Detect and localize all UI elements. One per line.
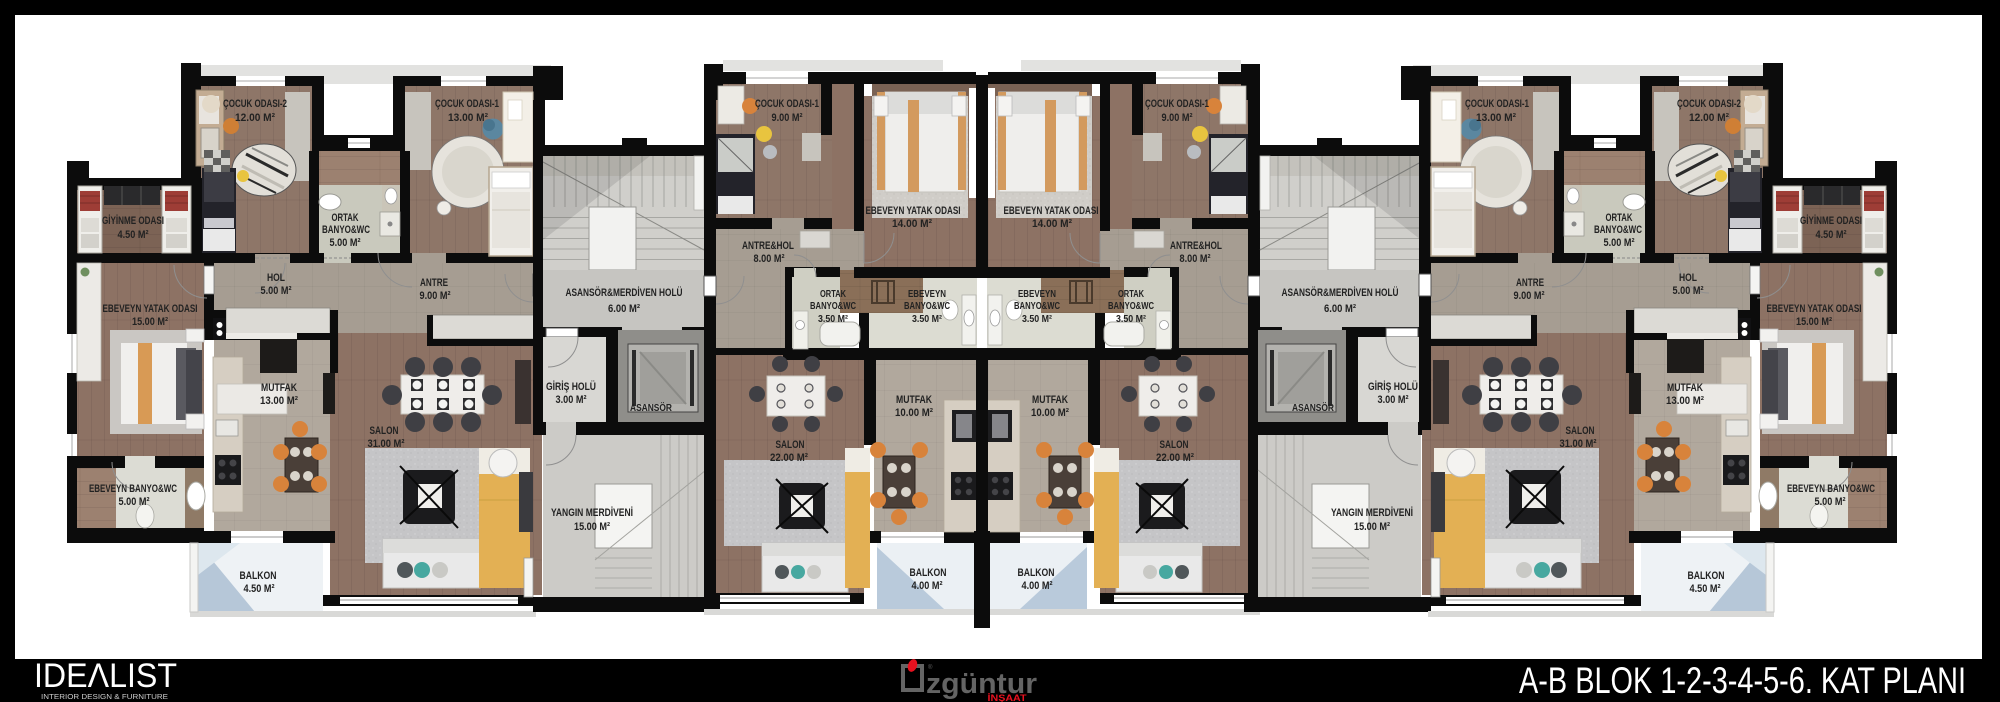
svg-text:GİYİNME ODASI: GİYİNME ODASI (102, 214, 164, 227)
svg-text:3.50 M²: 3.50 M² (1116, 313, 1146, 325)
svg-text:3.50 M²: 3.50 M² (912, 313, 942, 325)
svg-text:3.50 M²: 3.50 M² (818, 313, 848, 325)
svg-text:6.00 M²: 6.00 M² (608, 303, 640, 315)
svg-text:9.00 M²: 9.00 M² (420, 290, 451, 302)
svg-text:5.00 M²: 5.00 M² (261, 285, 292, 297)
svg-text:13.00 M²: 13.00 M² (260, 395, 298, 407)
svg-text:4.00 M²: 4.00 M² (912, 580, 943, 592)
svg-text:14.00 M²: 14.00 M² (892, 218, 932, 230)
svg-text:ÇOCUK ODASI-1: ÇOCUK ODASI-1 (1145, 98, 1209, 110)
svg-text:22.00 M²: 22.00 M² (1156, 452, 1194, 464)
svg-text:8.00 M²: 8.00 M² (754, 253, 785, 265)
svg-text:4.00 M²: 4.00 M² (1022, 580, 1053, 592)
svg-text:3.50 M²: 3.50 M² (1022, 313, 1052, 325)
svg-text:5.00 M²: 5.00 M² (1604, 237, 1635, 249)
svg-text:ÇOCUK ODASI-1: ÇOCUK ODASI-1 (1465, 98, 1529, 110)
svg-text:15.00 M²: 15.00 M² (1354, 521, 1390, 533)
svg-text:4.50 M²: 4.50 M² (1816, 229, 1847, 241)
svg-text:ANTRE: ANTRE (420, 277, 448, 289)
svg-text:31.00 M²: 31.00 M² (1560, 438, 1597, 450)
svg-text:®: ® (928, 664, 933, 671)
svg-text:5.00 M²: 5.00 M² (1673, 285, 1704, 297)
svg-text:ÇOCUK ODASI-2: ÇOCUK ODASI-2 (1677, 98, 1741, 110)
svg-text:EBEVEYN YATAK ODASI: EBEVEYN YATAK ODASI (103, 303, 198, 315)
svg-text:SALON: SALON (776, 439, 805, 451)
svg-text:15.00 M²: 15.00 M² (574, 521, 610, 533)
svg-text:MUTFAK: MUTFAK (1032, 394, 1068, 406)
svg-text:MUTFAK: MUTFAK (1667, 382, 1703, 394)
svg-text:ÇOCUK ODASI-2: ÇOCUK ODASI-2 (223, 98, 287, 110)
svg-text:ANTRE&HOL: ANTRE&HOL (742, 240, 794, 252)
svg-text:15.00 M²: 15.00 M² (132, 316, 168, 328)
svg-text:GİRİŞ HOLÜ: GİRİŞ HOLÜ (1368, 380, 1418, 393)
svg-text:ORTAK: ORTAK (1606, 212, 1633, 224)
svg-text:ORTAK: ORTAK (820, 288, 846, 300)
svg-text:IDEΛLIST: IDEΛLIST (34, 657, 177, 695)
svg-text:MUTFAK: MUTFAK (261, 382, 297, 394)
svg-text:EBEVEYN: EBEVEYN (908, 288, 946, 300)
svg-text:INTERIOR DESIGN & FURNITURE: INTERIOR DESIGN & FURNITURE (41, 694, 168, 701)
svg-text:A-B BLOK 1-2-3-4-5-6. KAT PLAN: A-B BLOK 1-2-3-4-5-6. KAT PLANI (1519, 660, 1966, 701)
svg-text:ANTRE&HOL: ANTRE&HOL (1170, 240, 1222, 252)
svg-text:BALKON: BALKON (910, 567, 947, 579)
svg-text:BANYO&WC: BANYO&WC (1108, 300, 1154, 312)
svg-text:BANYO&WC: BANYO&WC (1014, 300, 1060, 312)
svg-text:14.00 M²: 14.00 M² (1032, 218, 1072, 230)
svg-text:ASANSÖR&MERDİVEN HOLÜ: ASANSÖR&MERDİVEN HOLÜ (1282, 286, 1399, 299)
svg-text:ORTAK: ORTAK (1118, 288, 1144, 300)
svg-text:HOL: HOL (1679, 272, 1697, 284)
svg-text:6.00 M²: 6.00 M² (1324, 303, 1356, 315)
svg-text:GİYİNME ODASI: GİYİNME ODASI (1800, 214, 1862, 227)
svg-text:ASANSÖR&MERDİVEN HOLÜ: ASANSÖR&MERDİVEN HOLÜ (566, 286, 683, 299)
svg-text:9.00 M²: 9.00 M² (1514, 290, 1545, 302)
svg-text:4.50 M²: 4.50 M² (244, 583, 275, 595)
svg-text:GİRİŞ HOLÜ: GİRİŞ HOLÜ (546, 380, 596, 393)
svg-text:13.00 M²: 13.00 M² (1476, 112, 1516, 124)
svg-text:BALKON: BALKON (1688, 570, 1725, 582)
svg-text:3.00 M²: 3.00 M² (556, 394, 587, 406)
svg-text:EBEVEYN BANYO&WC: EBEVEYN BANYO&WC (89, 483, 177, 495)
svg-text:BALKON: BALKON (1018, 567, 1055, 579)
svg-text:SALON: SALON (1566, 425, 1595, 437)
svg-text:10.00 M²: 10.00 M² (1031, 407, 1069, 419)
svg-text:3.00 M²: 3.00 M² (1378, 394, 1409, 406)
svg-text:İNŞAAT: İNŞAAT (988, 693, 1027, 702)
svg-text:13.00 M²: 13.00 M² (1666, 395, 1704, 407)
svg-text:EBEVEYN: EBEVEYN (1018, 288, 1056, 300)
svg-text:YANGIN MERDİVENİ: YANGIN MERDİVENİ (1331, 506, 1413, 519)
svg-text:ASANSÖR: ASANSÖR (1292, 401, 1334, 414)
svg-text:9.00 M²: 9.00 M² (772, 112, 803, 124)
svg-text:MUTFAK: MUTFAK (896, 394, 932, 406)
svg-text:HOL: HOL (267, 272, 285, 284)
svg-text:EBEVEYN BANYO&WC: EBEVEYN BANYO&WC (1787, 483, 1875, 495)
svg-text:5.00 M²: 5.00 M² (1815, 496, 1846, 508)
svg-text:BANYO&WC: BANYO&WC (322, 224, 370, 236)
svg-text:BANYO&WC: BANYO&WC (1594, 224, 1642, 236)
svg-text:ORTAK: ORTAK (332, 212, 359, 224)
svg-text:15.00 M²: 15.00 M² (1796, 316, 1832, 328)
svg-text:ÇOCUK ODASI-1: ÇOCUK ODASI-1 (435, 98, 499, 110)
svg-text:4.50 M²: 4.50 M² (1690, 583, 1721, 595)
svg-text:SALON: SALON (1160, 439, 1189, 451)
svg-text:12.00 M²: 12.00 M² (1689, 112, 1729, 124)
svg-text:EBEVEYN YATAK ODASI: EBEVEYN YATAK ODASI (866, 205, 961, 217)
svg-text:SALON: SALON (370, 425, 399, 437)
svg-text:12.00 M²: 12.00 M² (235, 112, 275, 124)
svg-text:ANTRE: ANTRE (1516, 277, 1544, 289)
svg-text:ASANSÖR: ASANSÖR (630, 401, 672, 414)
svg-text:EBEVEYN YATAK ODASI: EBEVEYN YATAK ODASI (1004, 205, 1099, 217)
svg-text:ÇOCUK ODASI-1: ÇOCUK ODASI-1 (755, 98, 819, 110)
svg-text:4.50 M²: 4.50 M² (118, 229, 149, 241)
svg-text:8.00 M²: 8.00 M² (1180, 253, 1211, 265)
svg-text:10.00 M²: 10.00 M² (895, 407, 933, 419)
svg-text:9.00 M²: 9.00 M² (1162, 112, 1193, 124)
svg-text:5.00 M²: 5.00 M² (119, 496, 150, 508)
svg-text:EBEVEYN YATAK ODASI: EBEVEYN YATAK ODASI (1767, 303, 1862, 315)
svg-text:BANYO&WC: BANYO&WC (904, 300, 950, 312)
svg-text:BANYO&WC: BANYO&WC (810, 300, 856, 312)
svg-text:22.00 M²: 22.00 M² (770, 452, 808, 464)
svg-text:13.00 M²: 13.00 M² (448, 112, 488, 124)
svg-text:31.00 M²: 31.00 M² (368, 438, 405, 450)
svg-text:YANGIN MERDİVENİ: YANGIN MERDİVENİ (551, 506, 633, 519)
svg-text:5.00 M²: 5.00 M² (330, 237, 361, 249)
svg-text:BALKON: BALKON (240, 570, 277, 582)
